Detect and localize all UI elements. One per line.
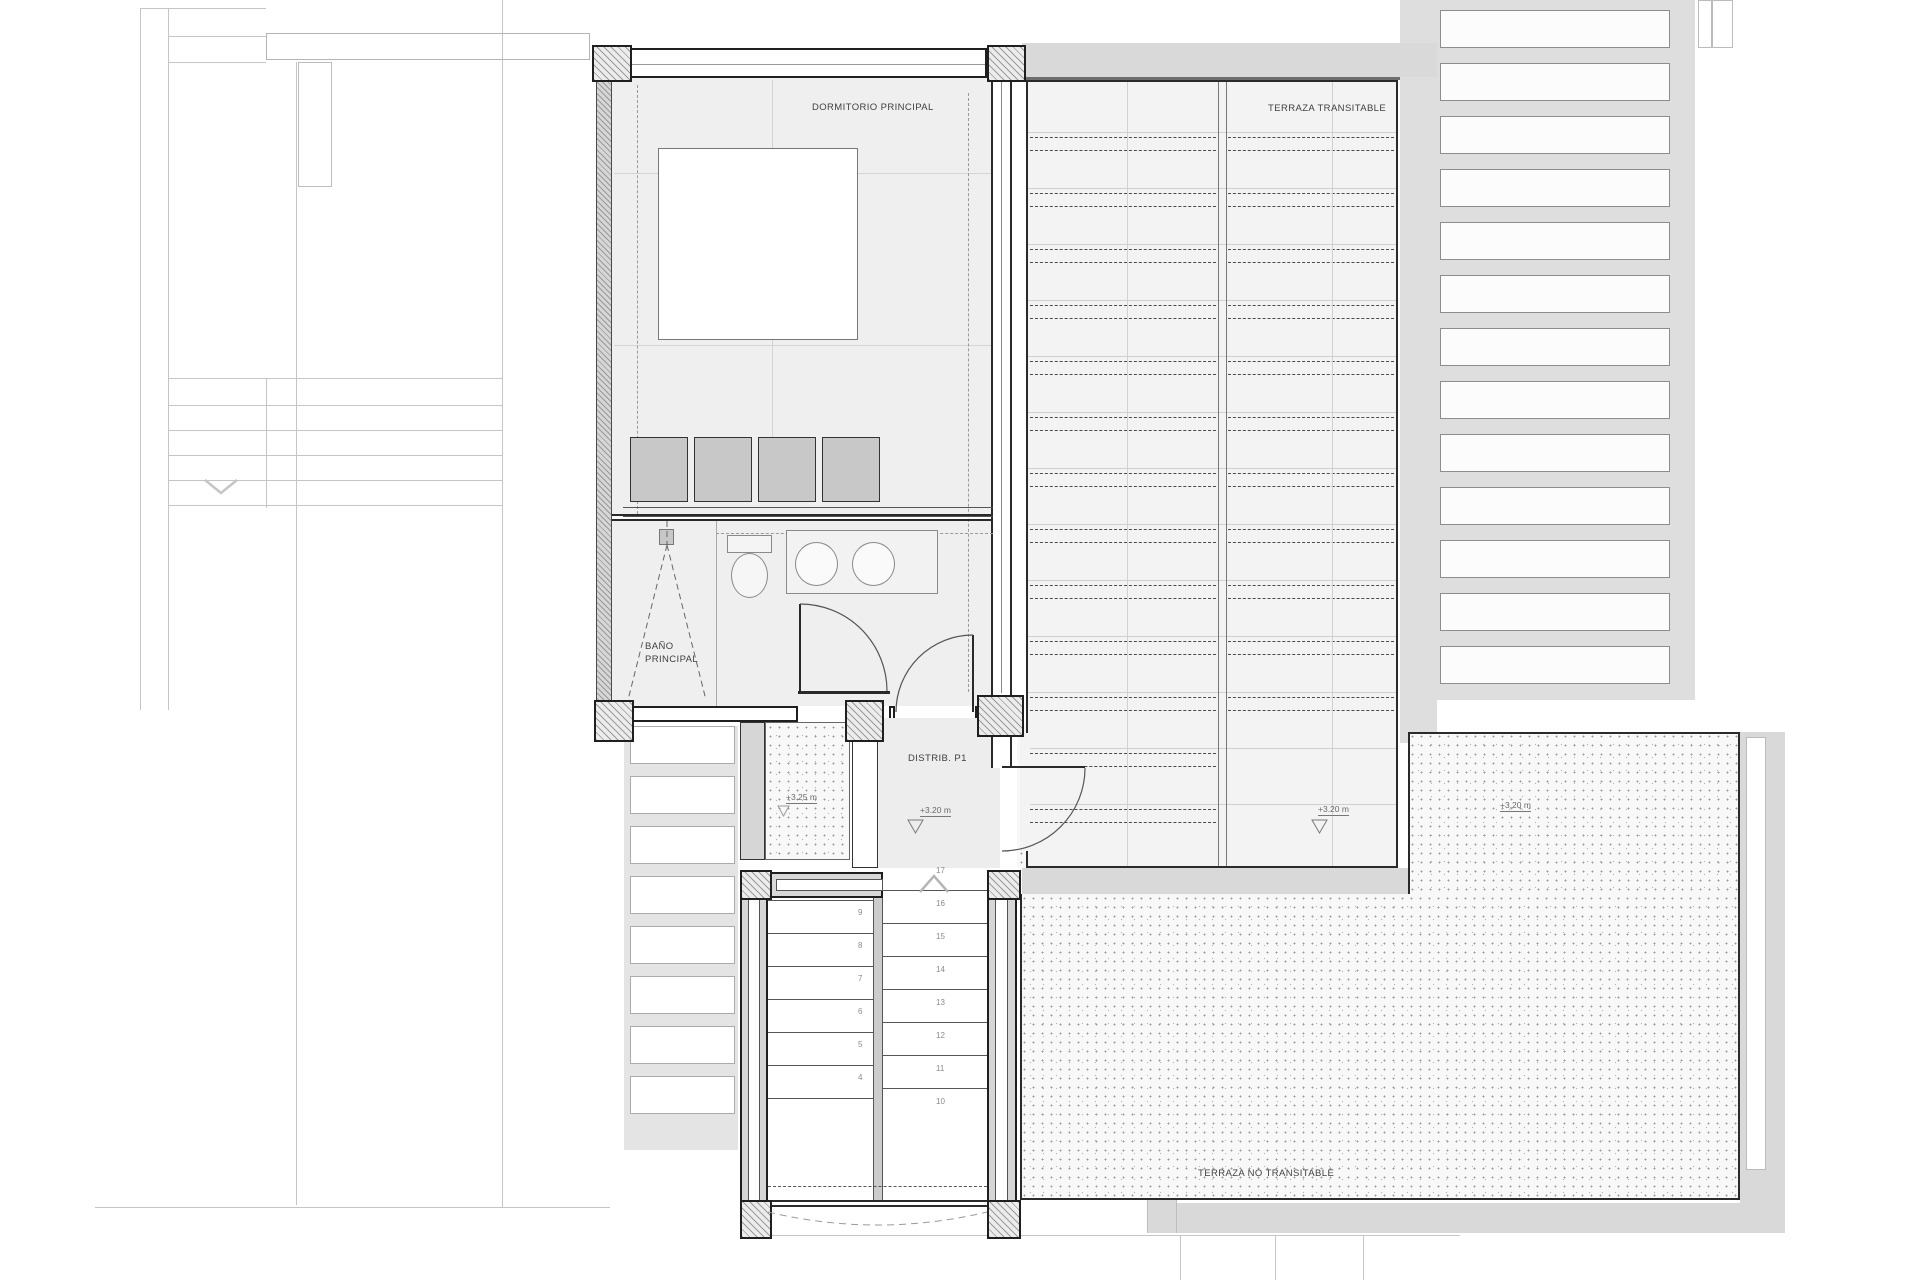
room-label-distributor: DISTRIB. P1 <box>908 753 967 764</box>
stair-step-number: 11 <box>936 1064 956 1074</box>
canopy-dashed-arc <box>768 1212 987 1225</box>
stair-step-number: 13 <box>936 998 956 1008</box>
bathroom-door-arc <box>800 604 887 691</box>
stair-step-number: 17 <box>936 866 956 876</box>
stair-step-number: 5 <box>858 1040 872 1050</box>
level-annotation: +3.20 m <box>1318 804 1349 816</box>
level-annotation: +3.20 m <box>1500 800 1531 812</box>
stair-step-number: 10 <box>936 1097 956 1107</box>
chevron-down-icon <box>205 480 237 493</box>
stair-step-number: 6 <box>858 1007 872 1017</box>
chevron-up-icon <box>920 876 948 892</box>
stair-step-number: 8 <box>858 941 872 951</box>
room-label-bathroom: BAÑO PRINCIPAL <box>645 640 698 666</box>
stair-step-number: 12 <box>936 1031 956 1041</box>
level-marker-icon <box>778 806 1327 833</box>
stair-step-number: 16 <box>936 899 956 909</box>
level-annotation: +3.20 m <box>920 805 951 817</box>
shower-outline <box>628 521 706 700</box>
bedroom-door-arc <box>896 635 973 712</box>
level-annotation: +3.25 m <box>786 792 817 804</box>
stair-step-number: 15 <box>936 932 956 942</box>
stair-step-number: 4 <box>858 1073 872 1083</box>
vector-overlay <box>0 0 1920 1280</box>
terrace-door-arc <box>1002 768 1085 851</box>
stair-step-number: 9 <box>858 908 872 918</box>
floor-plan-canvas: DORMITORIO PRINCIPAL TERRAZA TRANSITABLE… <box>0 0 1920 1280</box>
room-label-terrace-non-walkable: TERRAZA NO TRANSITABLE <box>1198 1168 1334 1179</box>
room-label-bedroom: DORMITORIO PRINCIPAL <box>812 102 934 113</box>
stair-step-number: 14 <box>936 965 956 975</box>
stair-step-number: 7 <box>858 974 872 984</box>
room-label-terrace-walkable: TERRAZA TRANSITABLE <box>1268 103 1386 114</box>
